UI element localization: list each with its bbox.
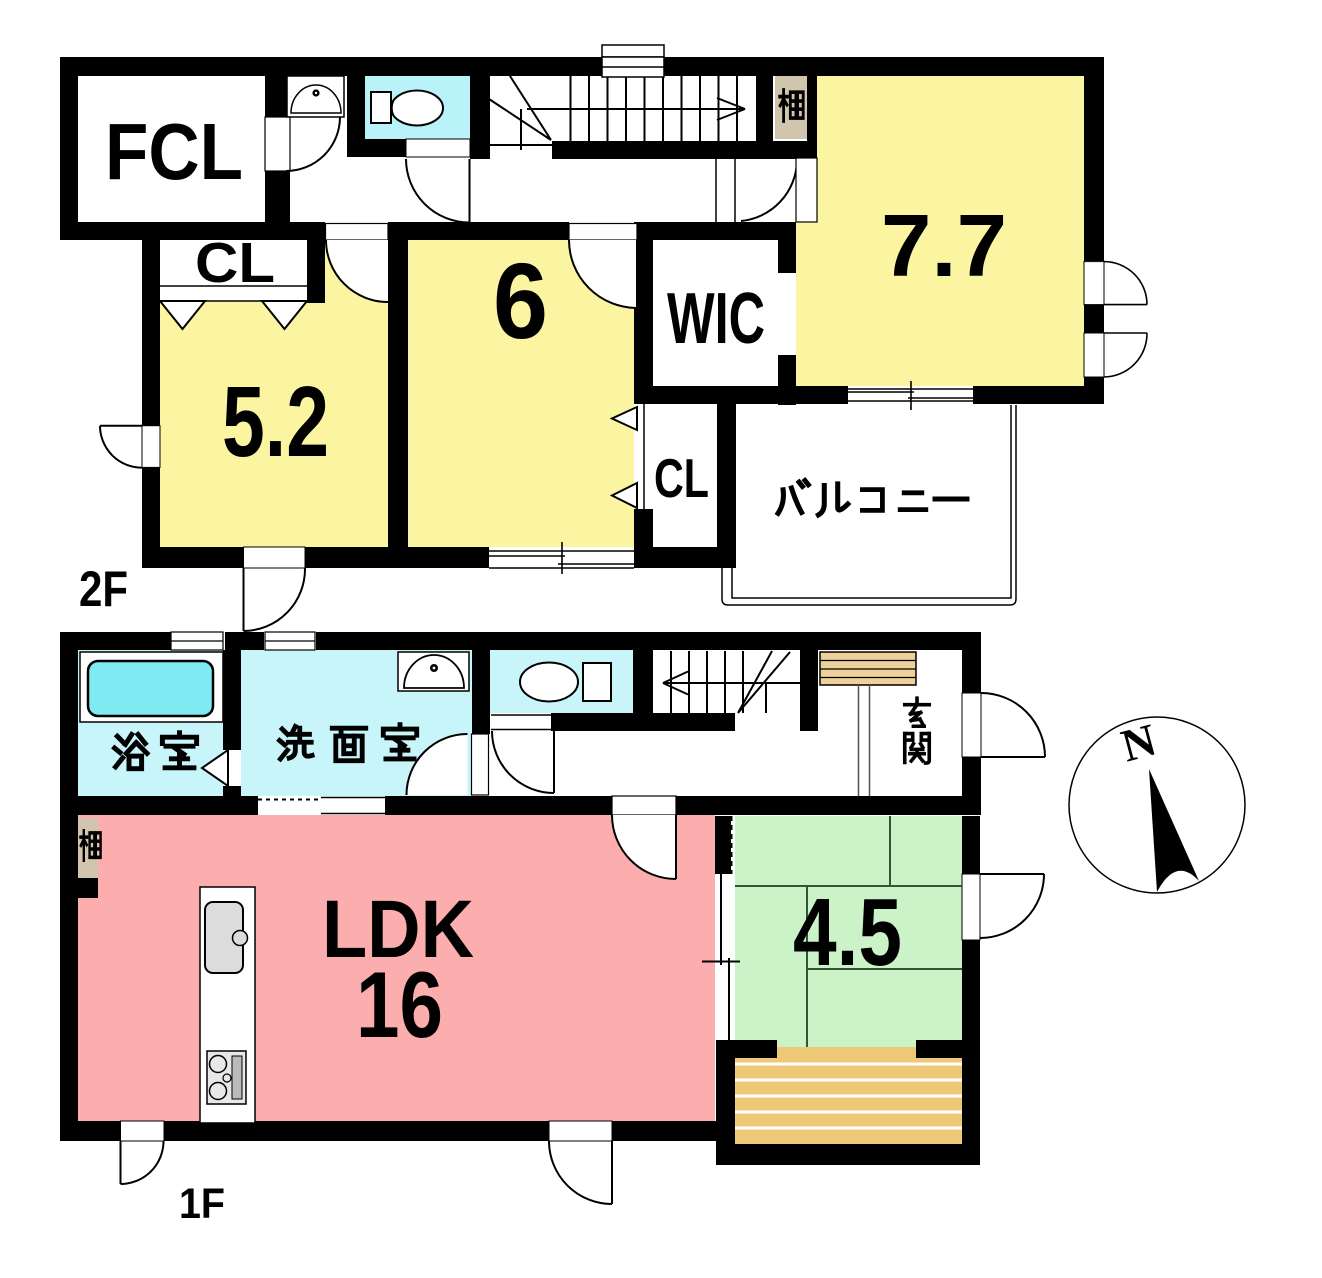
svg-text:CL: CL bbox=[654, 447, 709, 509]
svg-text:7.7: 7.7 bbox=[881, 196, 1007, 295]
svg-text:5.2: 5.2 bbox=[222, 366, 329, 478]
svg-text:6: 6 bbox=[493, 240, 548, 361]
svg-text:2F: 2F bbox=[79, 561, 128, 617]
svg-text:FCL: FCL bbox=[105, 107, 243, 196]
svg-text:N: N bbox=[1116, 714, 1161, 772]
svg-text:1F: 1F bbox=[179, 1180, 225, 1228]
svg-text:4.5: 4.5 bbox=[793, 879, 902, 986]
svg-text:16: 16 bbox=[356, 952, 443, 1057]
svg-text:WIC: WIC bbox=[667, 279, 765, 359]
svg-text:CL: CL bbox=[195, 231, 275, 295]
